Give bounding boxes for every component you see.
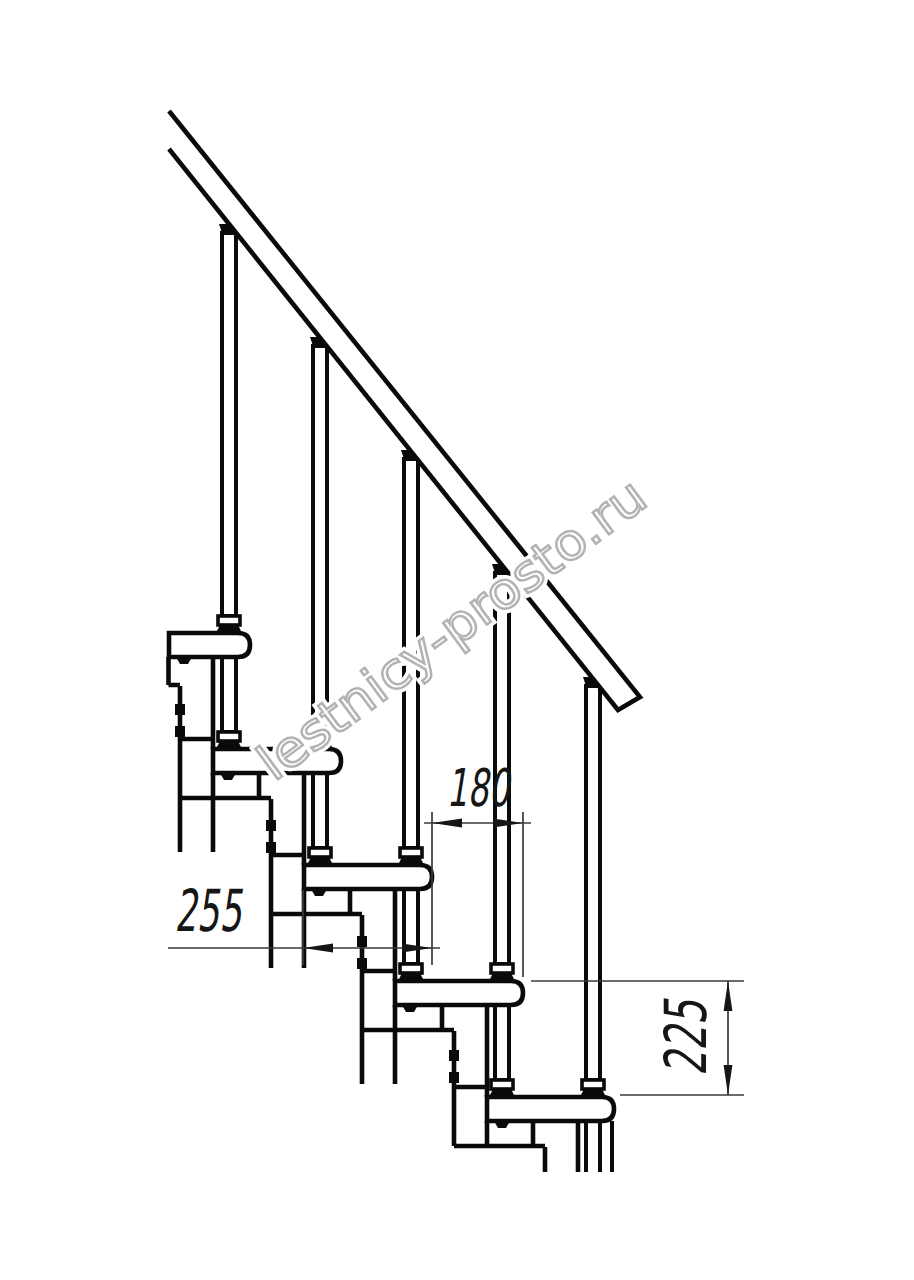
- baluster-5-lower-rod: [586, 1121, 600, 1172]
- dimension-step-run: 180: [424, 758, 531, 977]
- baluster-5: [580, 677, 606, 1097]
- step-run-label: 180: [447, 758, 512, 818]
- tread-5: [487, 1097, 614, 1128]
- baluster-3-lower-rod: [398, 889, 424, 981]
- technical-drawing-page: 180 255 225 lestnicy-prosto.ru lestnicy-…: [0, 0, 914, 1280]
- step-rise-label: 225: [652, 998, 720, 1076]
- dimension-step-rise: 225: [531, 981, 744, 1095]
- baluster-2-lower-rod: [307, 773, 333, 865]
- baluster-1: [216, 224, 242, 633]
- staircase-drawing: 180 255 225 lestnicy-prosto.ru lestnicy-…: [0, 0, 914, 1280]
- baluster-1-lower-rod: [216, 657, 242, 749]
- baluster-4-lower-rod: [489, 1005, 515, 1097]
- tread-depth-label: 255: [175, 877, 244, 945]
